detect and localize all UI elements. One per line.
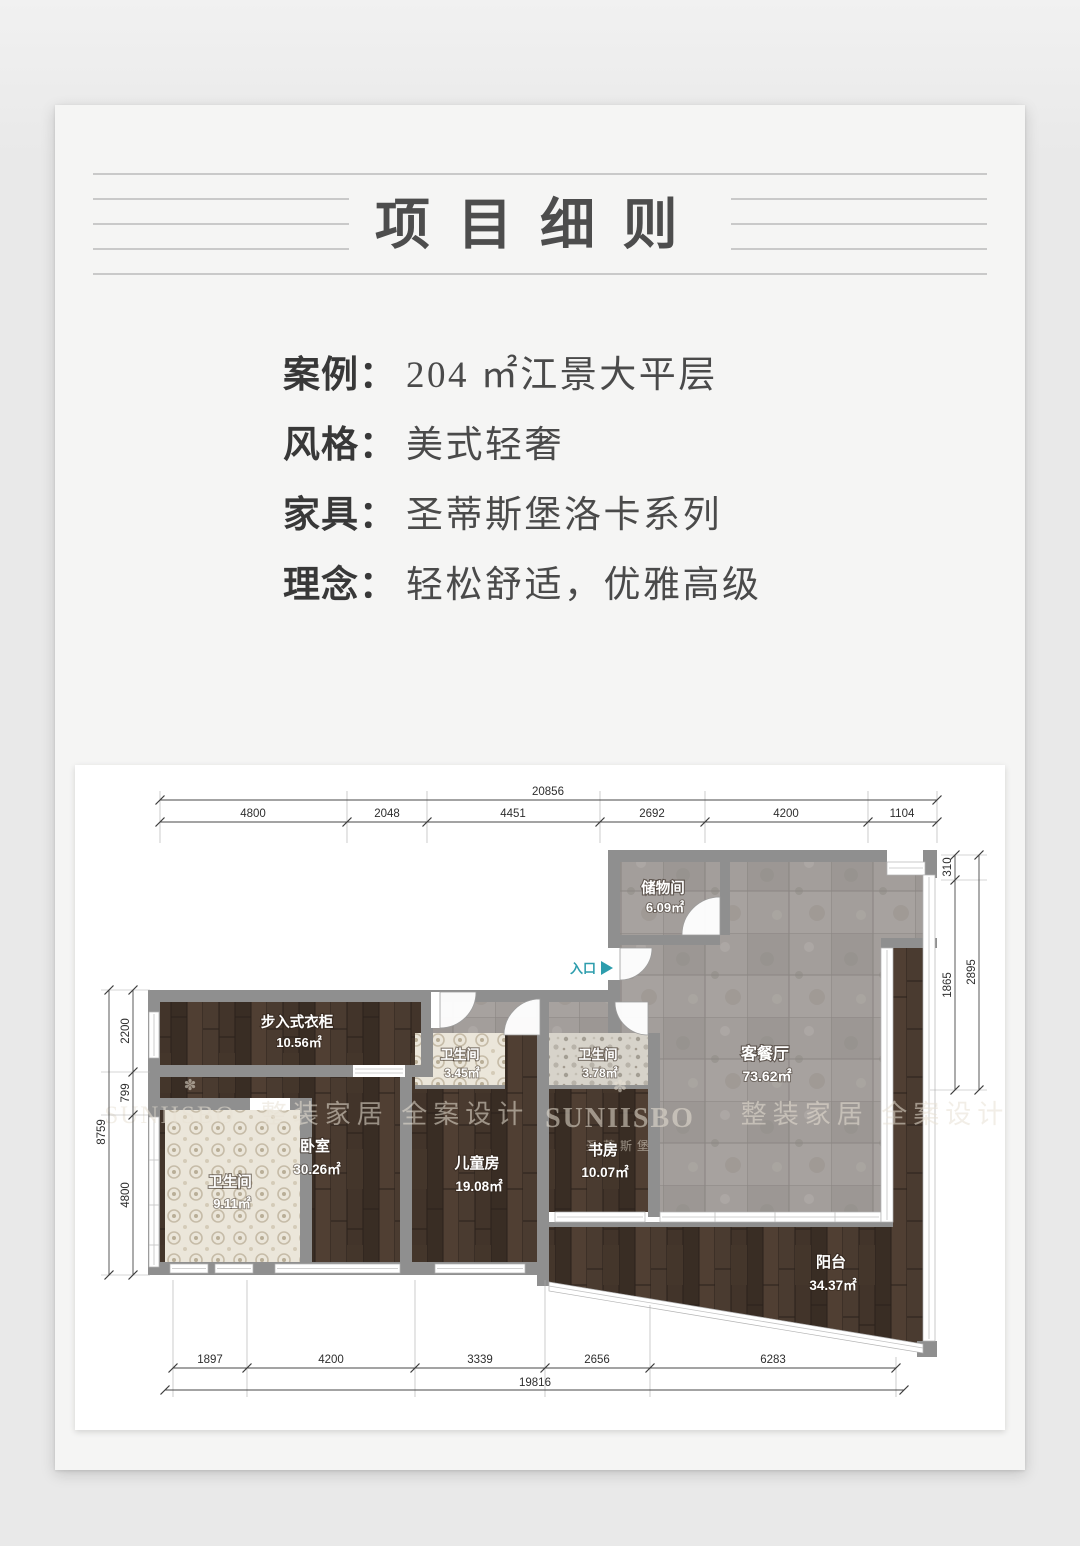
room-closet-area: 10.56㎡ bbox=[276, 1035, 322, 1050]
dim-left-seg: 2200 bbox=[120, 1018, 132, 1044]
page-title: 项目细则 bbox=[349, 193, 731, 256]
dim-bottom-seg: 6283 bbox=[760, 1354, 786, 1366]
room-bedroom-area: 30.26㎡ bbox=[293, 1161, 341, 1177]
room-study-name: 书房 bbox=[588, 1141, 618, 1159]
room-living-name: 客餐厅 bbox=[741, 1044, 789, 1063]
watermark-phrase-left: 整装家居 全案设计 bbox=[261, 1100, 530, 1129]
door-leaf bbox=[431, 992, 440, 1028]
room-study-area: 10.07㎡ bbox=[581, 1164, 629, 1180]
room-bath-mid-area: 3.78㎡ bbox=[582, 1065, 617, 1080]
info-value: 美式轻奢 bbox=[406, 427, 564, 464]
room-storage-area: 6.09㎡ bbox=[646, 900, 684, 915]
dim-top-seg: 2048 bbox=[374, 808, 400, 820]
dim-top-seg: 4800 bbox=[240, 808, 266, 820]
info-label: 理念 bbox=[283, 567, 359, 604]
entrance-label: 入口 bbox=[570, 961, 596, 976]
entrance-opening bbox=[608, 948, 620, 980]
room-kids-area: 19.08㎡ bbox=[455, 1178, 503, 1194]
room-master-bath-name: 卫生间 bbox=[208, 1173, 252, 1191]
dim-top-seg: 4200 bbox=[773, 808, 799, 820]
floor-plan-panel: ✽ SUNIISBO 整装家居 全案设计 ✽ SUNIISBO 圣蒂斯堡 整装家… bbox=[75, 765, 1005, 1430]
info-value: 轻松舒适，优雅高级 bbox=[406, 567, 762, 604]
dim-top-total: 20856 bbox=[532, 786, 564, 798]
project-info: 案例：204 ㎡江景大平层 风格：美式轻奢 家具：圣蒂斯堡洛卡系列 理念：轻松舒… bbox=[283, 357, 762, 637]
dim-right-seg: 1865 bbox=[942, 972, 954, 998]
closet-door-opening bbox=[353, 1065, 405, 1077]
title-divider-line bbox=[93, 273, 987, 275]
dim-left-total: 8759 bbox=[96, 1119, 108, 1145]
dim-bottom-seg: 2656 bbox=[584, 1354, 610, 1366]
dim-bottom-seg: 3339 bbox=[467, 1354, 493, 1366]
room-bath-small-name: 卫生间 bbox=[440, 1047, 479, 1062]
room-bath-small-area: 3.45㎡ bbox=[444, 1065, 479, 1080]
room-kids-name: 儿童房 bbox=[453, 1154, 499, 1172]
dim-left-seg: 4800 bbox=[120, 1182, 132, 1208]
dim-top-seg: 2692 bbox=[639, 808, 665, 820]
info-separator: ： bbox=[359, 567, 396, 604]
flower-icon: ✽ bbox=[184, 1078, 197, 1094]
info-row-concept: 理念：轻松舒适，优雅高级 bbox=[283, 567, 762, 604]
info-label: 风格 bbox=[283, 427, 359, 464]
info-label: 案例 bbox=[283, 357, 359, 394]
dim-left-seg: 799 bbox=[120, 1083, 132, 1102]
info-separator: ： bbox=[359, 427, 396, 464]
watermark-brand-center: SUNIISBO bbox=[545, 1103, 695, 1134]
title-block: 项目细则 bbox=[93, 173, 987, 277]
room-closet-name: 步入式衣柜 bbox=[261, 1013, 334, 1031]
room-master-bath-area: 9.11㎡ bbox=[213, 1196, 251, 1211]
room-balcony-name: 阳台 bbox=[816, 1253, 846, 1271]
watermark-brand-left: SUNIISBO bbox=[104, 1102, 235, 1129]
info-row-case: 案例：204 ㎡江景大平层 bbox=[283, 357, 762, 394]
info-value: 204 ㎡江景大平层 bbox=[406, 357, 718, 394]
info-row-furniture: 家具：圣蒂斯堡洛卡系列 bbox=[283, 497, 762, 534]
room-living-area: 73.62㎡ bbox=[742, 1068, 791, 1084]
title-divider-line bbox=[93, 173, 987, 175]
room-balcony-area: 34.37㎡ bbox=[809, 1277, 857, 1293]
room-bedroom-name: 卧室 bbox=[300, 1137, 330, 1155]
dim-bottom-seg: 1897 bbox=[197, 1354, 223, 1366]
closet-floor bbox=[160, 1002, 421, 1065]
watermark-phrase-right: 整装家居 全案设计 bbox=[741, 1100, 1005, 1129]
info-separator: ： bbox=[359, 357, 396, 394]
info-label: 家具 bbox=[283, 497, 359, 534]
content-card: 项目细则 案例：204 ㎡江景大平层 风格：美式轻奢 家具：圣蒂斯堡洛卡系列 理… bbox=[55, 105, 1025, 1470]
info-value: 圣蒂斯堡洛卡系列 bbox=[406, 497, 722, 534]
dim-right-seg: 310 bbox=[942, 857, 954, 876]
dim-top-seg: 4451 bbox=[500, 808, 526, 820]
dim-bottom-total: 19816 bbox=[519, 1377, 551, 1389]
dim-right-total: 2895 bbox=[966, 959, 978, 985]
dim-top-seg: 1104 bbox=[890, 808, 915, 820]
room-bath-mid-name: 卫生间 bbox=[578, 1047, 617, 1062]
top-right-window bbox=[887, 862, 925, 875]
info-row-style: 风格：美式轻奢 bbox=[283, 427, 762, 464]
entrance-marker: 入口 bbox=[570, 961, 613, 976]
dim-bottom-seg: 4200 bbox=[318, 1354, 344, 1366]
room-storage-name: 储物间 bbox=[641, 879, 685, 897]
floor-plan: ✽ SUNIISBO 整装家居 全案设计 ✽ SUNIISBO 圣蒂斯堡 整装家… bbox=[75, 765, 1005, 1430]
info-separator: ： bbox=[359, 497, 396, 534]
